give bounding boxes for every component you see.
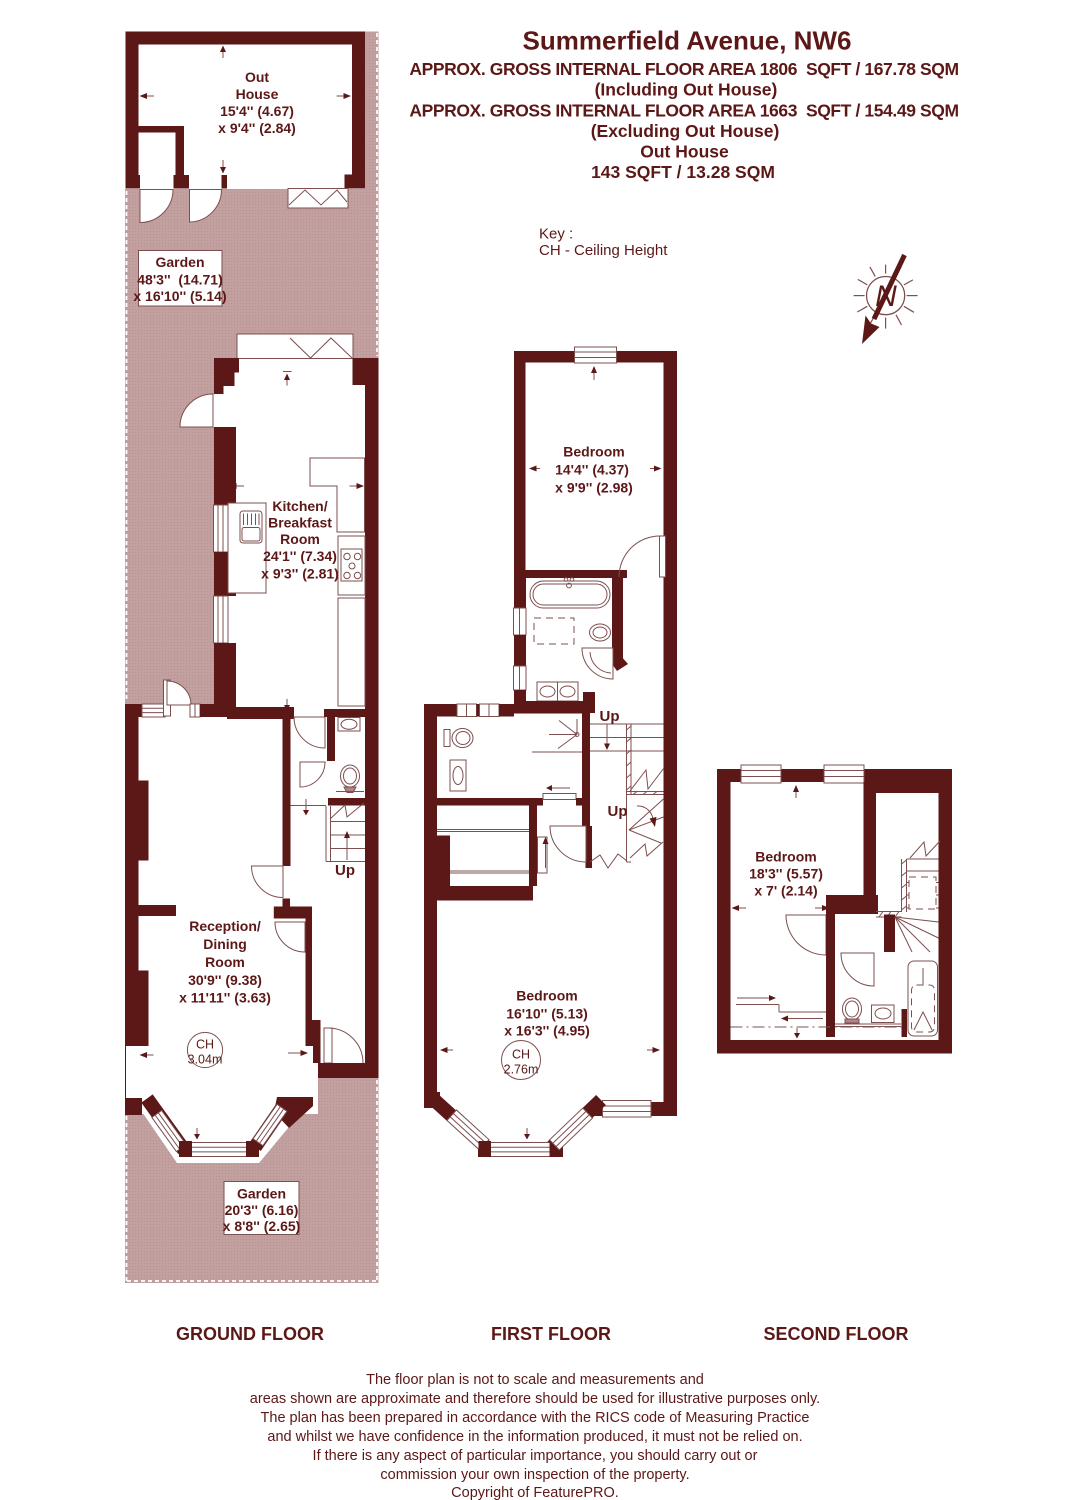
svg-text:(Excluding Out House): (Excluding Out House): [591, 121, 780, 141]
svg-text:The plan has been prepared in: The plan has been prepared in accordance…: [261, 1410, 810, 1426]
svg-text:If there is any aspect of part: If there is any aspect of particular imp…: [313, 1448, 758, 1464]
svg-text:Summerfield Avenue, NW6: Summerfield Avenue, NW6: [523, 26, 852, 56]
svg-text:Bedroom: Bedroom: [516, 988, 577, 1004]
svg-text:Reception/: Reception/: [189, 918, 261, 934]
svg-text:Up: Up: [335, 862, 355, 879]
svg-text:APPROX. GROSS INTERNAL FLOOR A: APPROX. GROSS INTERNAL FLOOR AREA 1663 S…: [409, 101, 958, 121]
svg-text:30'9'' (9.38): 30'9'' (9.38): [188, 972, 262, 988]
svg-text:(Including Out House): (Including Out House): [595, 80, 778, 100]
svg-text:APPROX. GROSS INTERNAL FLOOR A: APPROX. GROSS INTERNAL FLOOR AREA 1806 S…: [409, 59, 958, 79]
svg-text:14'4'' (4.37): 14'4'' (4.37): [555, 462, 629, 478]
svg-text:N: N: [875, 280, 897, 313]
svg-text:Dining: Dining: [203, 936, 247, 952]
svg-text:Garden: Garden: [155, 254, 204, 270]
svg-text:x 9'3'' (2.81): x 9'3'' (2.81): [261, 566, 339, 582]
svg-text:CH: CH: [512, 1048, 530, 1062]
svg-text:143 SQFT / 13.28 SQM: 143 SQFT / 13.28 SQM: [591, 162, 775, 182]
svg-text:CH - Ceiling Height: CH - Ceiling Height: [539, 242, 668, 259]
svg-text:Kitchen/: Kitchen/: [272, 498, 327, 514]
svg-text:SECOND FLOOR: SECOND FLOOR: [763, 1324, 908, 1344]
svg-text:x 16'3'' (4.95): x 16'3'' (4.95): [504, 1023, 589, 1039]
svg-text:x 8'8'' (2.65): x 8'8'' (2.65): [223, 1218, 301, 1234]
svg-text:CH: CH: [196, 1038, 214, 1052]
svg-text:16'10'' (5.13): 16'10'' (5.13): [506, 1006, 588, 1022]
svg-text:FIRST FLOOR: FIRST FLOOR: [491, 1324, 611, 1344]
svg-text:Key :: Key :: [539, 226, 573, 243]
svg-text:x 9'4'' (2.84): x 9'4'' (2.84): [218, 120, 296, 136]
svg-text:Bedroom: Bedroom: [563, 444, 624, 460]
svg-text:GROUND FLOOR: GROUND FLOOR: [176, 1324, 324, 1344]
svg-text:Garden: Garden: [237, 1186, 286, 1202]
svg-text:Room: Room: [280, 531, 320, 547]
svg-text:15'4'' (4.67): 15'4'' (4.67): [220, 103, 294, 119]
svg-text:Copyright of FeaturePRO.: Copyright of FeaturePRO.: [451, 1485, 619, 1500]
svg-text:Out House: Out House: [640, 142, 729, 162]
svg-text:48'3'' (14.71): 48'3'' (14.71): [137, 272, 222, 288]
svg-text:2.76m: 2.76m: [504, 1063, 539, 1077]
svg-text:24'1'' (7.34): 24'1'' (7.34): [263, 548, 337, 564]
svg-text:The floor plan is not to scale: The floor plan is not to scale and measu…: [366, 1372, 704, 1388]
svg-text:3.04m: 3.04m: [188, 1053, 223, 1067]
svg-text:18'3'' (5.57): 18'3'' (5.57): [749, 866, 823, 882]
svg-text:House: House: [236, 86, 279, 102]
svg-text:and whilst we have confidence: and whilst we have confidence in the inf…: [267, 1429, 802, 1445]
svg-text:Up: Up: [600, 708, 620, 725]
svg-text:x 16'10'' (5.14): x 16'10'' (5.14): [133, 288, 226, 304]
svg-text:Up: Up: [608, 803, 628, 820]
svg-text:x 9'9'' (2.98): x 9'9'' (2.98): [555, 480, 633, 496]
svg-text:Breakfast: Breakfast: [268, 515, 332, 531]
svg-text:20'3'' (6.16): 20'3'' (6.16): [225, 1202, 299, 1218]
svg-text:Bedroom: Bedroom: [755, 849, 816, 865]
svg-text:Out: Out: [245, 69, 269, 85]
svg-text:x 7' (2.14): x 7' (2.14): [754, 883, 817, 899]
svg-text:x 11'11'' (3.63): x 11'11'' (3.63): [179, 990, 271, 1006]
svg-text:Room: Room: [205, 954, 245, 970]
svg-text:commission your own inspection: commission your own inspection of the pr…: [380, 1467, 689, 1483]
svg-text:areas shown are approximate an: areas shown are approximate and therefor…: [250, 1391, 820, 1407]
